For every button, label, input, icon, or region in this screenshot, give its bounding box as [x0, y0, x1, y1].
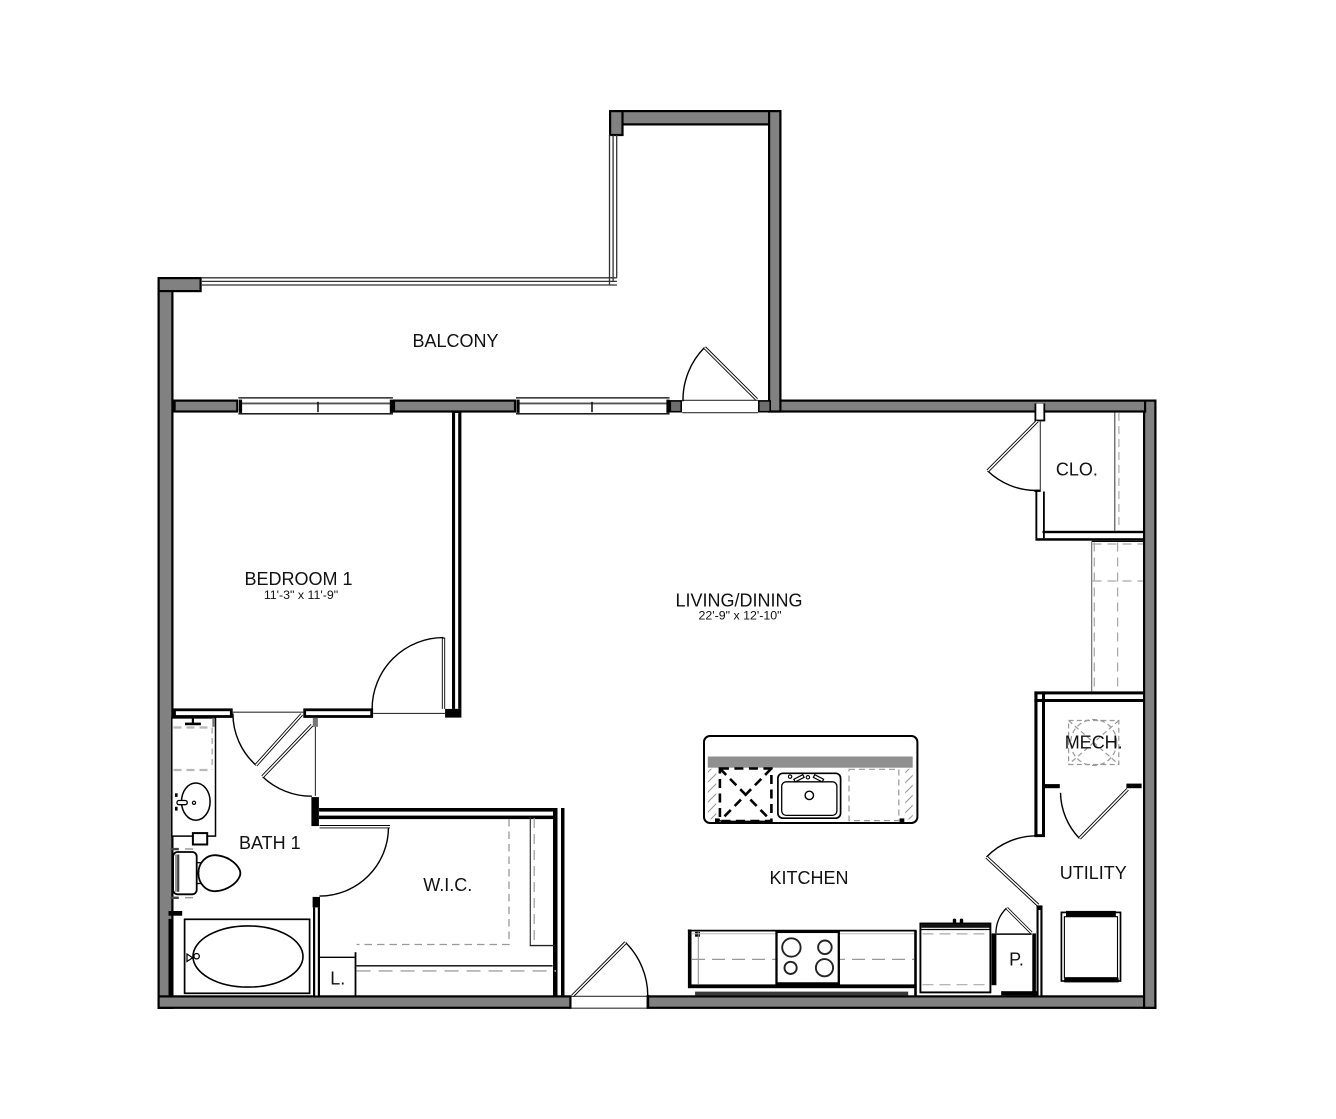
- svg-text:KITCHEN: KITCHEN: [769, 868, 848, 888]
- svg-text:MECH.: MECH.: [1065, 732, 1123, 752]
- svg-text:BALCONY: BALCONY: [412, 331, 498, 351]
- svg-text:BEDROOM 1: BEDROOM 1: [244, 569, 352, 589]
- svg-text:22'-9" x 12'-10": 22'-9" x 12'-10": [698, 609, 781, 623]
- svg-text:CLO.: CLO.: [1056, 460, 1098, 480]
- svg-text:UTILITY: UTILITY: [1060, 863, 1127, 883]
- svg-text:11'-3" x 11'-9": 11'-3" x 11'-9": [264, 588, 338, 602]
- svg-text:LIVING/DINING: LIVING/DINING: [675, 591, 802, 611]
- svg-text:BATH 1: BATH 1: [239, 833, 301, 853]
- svg-text:W.I.C.: W.I.C.: [423, 875, 472, 895]
- svg-text:L.: L.: [330, 969, 345, 989]
- svg-text:P.: P.: [1009, 950, 1024, 970]
